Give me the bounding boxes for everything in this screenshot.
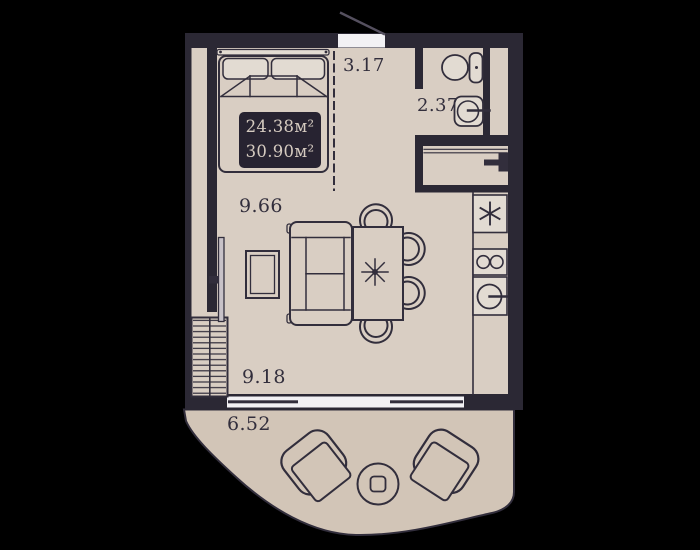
balcony-window <box>227 397 464 408</box>
label-kitchen-zone-area: 9.18 <box>242 366 286 388</box>
tv-stand <box>246 251 279 298</box>
label-bathroom-area: 2.37 <box>417 95 459 116</box>
dining-table <box>353 227 403 320</box>
label-hallway-area: 3.17 <box>343 55 385 76</box>
area-label-line2: 30.90м² <box>246 140 315 165</box>
label-living-area: 9.66 <box>239 195 283 217</box>
entry-door <box>338 13 385 48</box>
area-label-line1: 24.38м² <box>246 115 315 140</box>
wardrobe-hatched <box>192 318 228 397</box>
inner-left-wall <box>207 48 217 312</box>
floor-plan-drawing <box>0 0 700 550</box>
toilet-icon <box>442 55 468 80</box>
entry-door-swing <box>340 13 385 35</box>
entry-door-opening <box>338 34 385 48</box>
bathroom-inner-right-wall <box>483 48 490 135</box>
balcony-round-table <box>358 464 399 505</box>
label-balcony-area: 6.52 <box>227 413 271 435</box>
bed-headboard <box>217 50 329 56</box>
bathroom-bottom-wall <box>415 135 508 146</box>
area-label-box: 24.38м² 30.90м² <box>239 112 321 168</box>
table-plant-icon <box>362 259 388 285</box>
tv-screen <box>219 238 225 322</box>
floor-plan-canvas: 3.17 2.37 9.66 9.18 6.52 24.38м² 30.90м² <box>0 0 700 550</box>
bathroom-left-wall <box>415 48 423 89</box>
tv-mount <box>209 276 219 284</box>
sofa <box>287 222 352 325</box>
closet-bottom-wall <box>415 185 508 193</box>
closet-handle <box>484 160 500 166</box>
